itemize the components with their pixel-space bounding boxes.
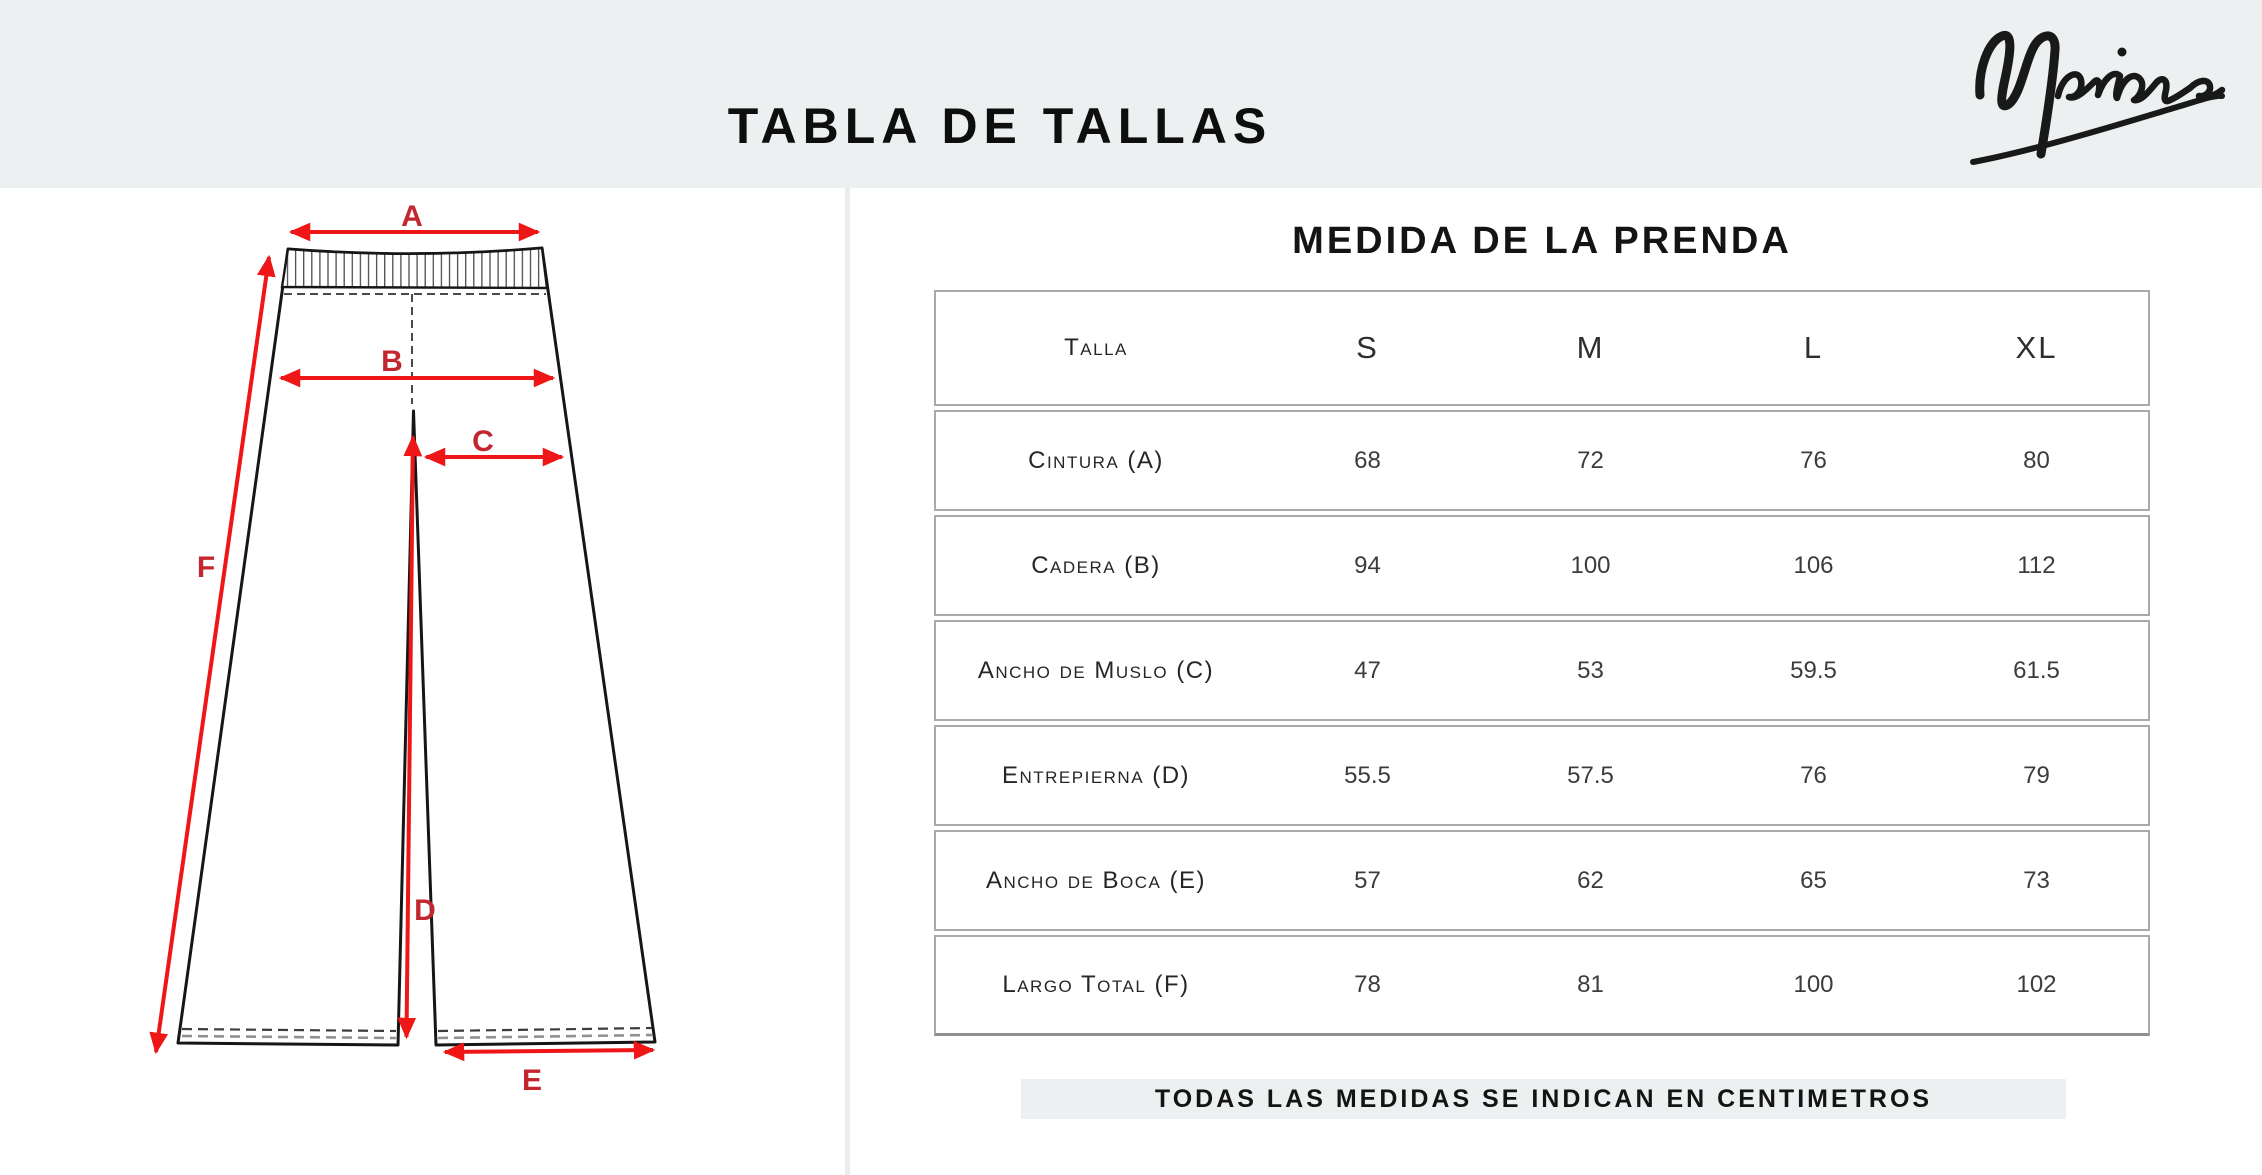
table-row-cadera: Cadera (B) 94 100 106 112 (934, 515, 2150, 616)
value-cell: 62 (1479, 867, 1702, 895)
label-a: A (401, 200, 423, 233)
value-cell: 76 (1702, 447, 1925, 475)
label-f: F (197, 551, 215, 584)
value-cell: 61.5 (1925, 657, 2148, 685)
header-talla: Talla (936, 334, 1256, 362)
table-row-ancho-de-muslo: Ancho de Muslo (C) 47 53 59.5 61.5 (934, 620, 2150, 721)
label-d: D (414, 894, 436, 927)
label-b: B (381, 345, 403, 378)
header-size-s: S (1256, 330, 1479, 366)
pants-measurement-diagram: A B C D E F (0, 188, 845, 1175)
table-row-largo-total: Largo Total (F) 78 81 100 102 (934, 935, 2150, 1036)
value-cell: 112 (1925, 552, 2148, 580)
value-cell: 72 (1479, 447, 1702, 475)
table-row-entrepierna: Entrepierna (D) 55.5 57.5 76 79 (934, 725, 2150, 826)
size-chart-page: TABLA DE TALLAS (0, 0, 2262, 1175)
row-label: Ancho de Muslo (C) (936, 657, 1256, 685)
value-cell: 102 (1925, 971, 2148, 999)
value-cell: 100 (1479, 552, 1702, 580)
value-cell: 94 (1256, 552, 1479, 580)
value-cell: 57 (1256, 867, 1479, 895)
value-cell: 57.5 (1479, 762, 1702, 790)
panel-divider (845, 188, 850, 1175)
value-cell: 59.5 (1702, 657, 1925, 685)
value-cell: 81 (1479, 971, 1702, 999)
signature-arina-stroke (2058, 74, 2190, 101)
header-band (0, 0, 2262, 188)
value-cell: 78 (1256, 971, 1479, 999)
row-label: Entrepierna (D) (936, 762, 1256, 790)
row-label: Largo Total (F) (936, 971, 1256, 999)
table-row-ancho-de-boca: Ancho de Boca (E) 57 62 65 73 (934, 830, 2150, 931)
size-table: Talla S M L XL Cintura (A) 68 72 76 80 C… (934, 290, 2150, 1040)
row-label: Cadera (B) (936, 552, 1256, 580)
arrow-e-leg-opening (445, 1050, 653, 1052)
waistband (282, 248, 547, 288)
header-size-xl: XL (1925, 330, 2148, 366)
signature-i-dot (2118, 48, 2127, 57)
row-label: Cintura (A) (936, 447, 1256, 475)
value-cell: 68 (1256, 447, 1479, 475)
value-cell: 76 (1702, 762, 1925, 790)
table-row-cintura: Cintura (A) 68 72 76 80 (934, 410, 2150, 511)
table-title: MEDIDA DE LA PRENDA (934, 220, 2150, 263)
label-e: E (522, 1064, 542, 1097)
header-size-l: L (1702, 330, 1925, 366)
row-label: Ancho de Boca (E) (936, 867, 1256, 895)
label-c: C (472, 425, 494, 458)
units-note: TODAS LAS MEDIDAS SE INDICAN EN CENTIMET… (1021, 1079, 2066, 1119)
table-header-row: Talla S M L XL (934, 290, 2150, 406)
value-cell: 55.5 (1256, 762, 1479, 790)
signature-m-stroke (1980, 35, 2055, 154)
value-cell: 65 (1702, 867, 1925, 895)
value-cell: 106 (1702, 552, 1925, 580)
value-cell: 100 (1702, 971, 1925, 999)
value-cell: 73 (1925, 867, 2148, 895)
value-cell: 53 (1479, 657, 1702, 685)
header-size-m: M (1479, 330, 1702, 366)
brand-logo-marina-signature (1925, 0, 2250, 180)
value-cell: 80 (1925, 447, 2148, 475)
page-title: TABLA DE TALLAS (0, 100, 2000, 152)
value-cell: 47 (1256, 657, 1479, 685)
value-cell: 79 (1925, 762, 2148, 790)
